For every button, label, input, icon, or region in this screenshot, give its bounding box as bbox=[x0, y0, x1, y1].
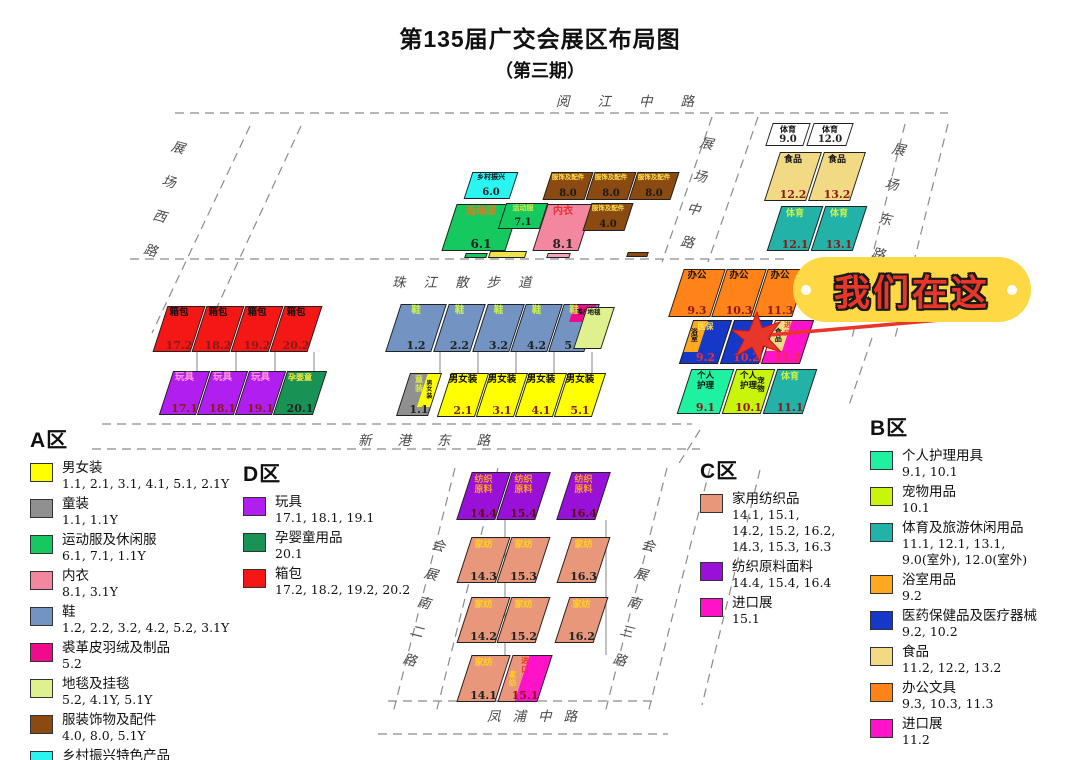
legend-category-name: 体育及旅游休闲用品 bbox=[902, 520, 1027, 536]
legend-swatch bbox=[30, 715, 53, 734]
legend-item-童装: 童装1.1, 1.1Y bbox=[30, 496, 235, 528]
hall-number: 19.2 bbox=[244, 340, 271, 351]
hall-label: 服饰及配件 bbox=[595, 174, 628, 181]
hall-number: 4.1 bbox=[531, 405, 550, 416]
legend-swatch bbox=[243, 497, 266, 516]
hall-block-16.3: 家纺16.3 bbox=[564, 537, 603, 583]
hall-shape bbox=[464, 253, 488, 258]
hall-block-20.2: 箱包20.2 bbox=[277, 306, 315, 352]
legend-item-乡村振兴特色产品: 乡村振兴特色产品6.0 bbox=[30, 748, 235, 760]
legend-item-玩具: 玩具17.1, 18.1, 19.1 bbox=[243, 494, 448, 526]
legend-swatch bbox=[30, 607, 53, 626]
legend-item-个人护理用具: 个人护理用具9.1, 10.1 bbox=[870, 448, 1075, 480]
hall-number: 14.2 bbox=[470, 631, 497, 642]
map-strip bbox=[547, 253, 570, 258]
hall-number: 4.2 bbox=[527, 340, 546, 351]
hall-number: 6.0 bbox=[482, 188, 499, 198]
hall-label: 进 口 bbox=[784, 322, 791, 338]
hall-number: 13.2 bbox=[824, 189, 851, 200]
hall-label: 体育 bbox=[822, 125, 838, 134]
hall-number: 9.1 bbox=[696, 402, 715, 413]
legend-hall-numbers: 5.2 bbox=[62, 656, 170, 672]
legend-item-进口展: 进口展11.2 bbox=[870, 716, 1075, 748]
hall-block-5.1: 男女装5.1 bbox=[561, 373, 599, 417]
hall-label: 家纺 bbox=[514, 599, 532, 609]
hall-sub-label: 男 女 装 bbox=[427, 381, 433, 400]
hall-number: 20.2 bbox=[283, 340, 310, 351]
hall-number: 15.1 bbox=[512, 690, 539, 701]
legend-title: B区 bbox=[870, 412, 1075, 442]
callout-sticker: 我们在这 bbox=[793, 257, 1031, 322]
hall-label: 鞋 bbox=[569, 306, 579, 317]
hall-label: 个人 护理 bbox=[740, 371, 757, 391]
legend-hall-numbers: 14.1, 15.1, 14.2, 15.2, 16.2, 14.3, 15.3… bbox=[732, 507, 835, 555]
hall-label: 办公 bbox=[770, 271, 789, 282]
hall-label: 男女装 bbox=[449, 375, 478, 386]
legend-category-name: 运动服及休闲服 bbox=[62, 532, 157, 548]
hall-number: 6.1 bbox=[471, 238, 492, 250]
legend-category-name: 进口展 bbox=[902, 716, 943, 732]
hall-number: 15.4 bbox=[510, 508, 537, 519]
legend-swatch bbox=[30, 751, 53, 760]
hall-number: 12.2 bbox=[780, 189, 807, 200]
hall-number: 15.3 bbox=[510, 571, 537, 582]
hall-block-20.1: 孕婴童20.1 bbox=[280, 371, 320, 415]
legend-hall-numbers: 17.2, 18.2, 19.2, 20.2 bbox=[275, 582, 410, 598]
legend-hall-numbers: 10.1 bbox=[902, 500, 956, 516]
legend-item-浴室用品: 浴室用品9.2 bbox=[870, 572, 1075, 604]
legend-hall-numbers: 9.2, 10.2 bbox=[902, 624, 1037, 640]
hall-number: 8.1 bbox=[553, 238, 574, 250]
legend-category-name: 个人护理用具 bbox=[902, 448, 983, 464]
hall-label: 服饰及配件 bbox=[552, 174, 585, 181]
hall-number: 13.1 bbox=[826, 239, 853, 250]
hall-label: 进 口 bbox=[521, 657, 529, 674]
hall-block-17.2: 箱包17.2 bbox=[160, 306, 198, 352]
hall-label: 男女装 bbox=[488, 375, 517, 386]
legend-category-name: 乡村振兴特色产品 bbox=[62, 748, 170, 760]
hall-label: 箱包 bbox=[286, 308, 305, 319]
legend-category-name: 进口展 bbox=[732, 595, 773, 611]
legend-swatch bbox=[700, 562, 723, 581]
hall-label: 男女装 bbox=[527, 375, 556, 386]
hall-label: 内衣 bbox=[553, 206, 573, 218]
hall-block-15.4: 纺织 原料15.4 bbox=[504, 472, 543, 520]
hall-shape bbox=[546, 253, 571, 258]
hall-label: 食品 bbox=[828, 154, 846, 164]
hall-block-12.0: 体育12.0 bbox=[810, 123, 850, 146]
legend-item-体育及旅游休闲用品: 体育及旅游休闲用品11.1, 12.1, 13.1, 9.0(室外), 12.0… bbox=[870, 520, 1075, 568]
hall-label: 箱包 bbox=[247, 308, 266, 319]
legend-hall-numbers: 11.2, 12.2, 13.2 bbox=[902, 660, 1001, 676]
legend-item-运动服及休闲服: 运动服及休闲服6.1, 7.1, 1.1Y bbox=[30, 532, 235, 564]
hall-number: 7.1 bbox=[514, 218, 531, 228]
legend-swatch bbox=[870, 611, 893, 630]
legend-hall-numbers: 1.2, 2.2, 3.2, 4.2, 5.2, 3.1Y bbox=[62, 620, 229, 636]
hall-number: 8.0 bbox=[559, 189, 576, 199]
hall-sub-label: 食 品 bbox=[774, 329, 781, 344]
legend-item-男女装: 男女装1.1, 2.1, 3.1, 4.1, 5.1, 2.1Y bbox=[30, 460, 235, 492]
hall-label: 体育 bbox=[786, 208, 804, 218]
hall-block-13.2: 食品13.2 bbox=[816, 152, 858, 201]
hall-number: 16.3 bbox=[570, 571, 597, 582]
hall-number: 11.2 bbox=[774, 352, 801, 363]
legend-hall-numbers: 9.2 bbox=[902, 588, 956, 604]
hall-number: 3.1 bbox=[492, 405, 511, 416]
hall-label: 纺织 原料 bbox=[514, 474, 532, 495]
hall-block-10.2: 10.2 bbox=[727, 320, 766, 364]
legend-category-name: 玩具 bbox=[275, 494, 374, 510]
hall-label: 体育 bbox=[830, 208, 848, 218]
hall-label: 办公 bbox=[729, 271, 748, 282]
hall-block-14.4: 纺织 原料14.4 bbox=[464, 472, 503, 520]
legend-title: A区 bbox=[30, 424, 235, 454]
hall-number: 19.1 bbox=[247, 403, 274, 414]
legend-item-宠物用品: 宠物用品10.1 bbox=[870, 484, 1075, 516]
hall-number: 14.1 bbox=[470, 690, 497, 701]
hall-block-8.1: 内衣8.1 bbox=[540, 204, 586, 251]
legend-swatch bbox=[30, 643, 53, 662]
legend-hall-numbers: 11.2 bbox=[902, 732, 943, 748]
hall-number: 14.4 bbox=[470, 508, 497, 519]
hall-label: 办公 bbox=[687, 271, 706, 282]
legend-hall-numbers: 14.4, 15.4, 16.4 bbox=[732, 575, 831, 591]
legend-swatch bbox=[30, 535, 53, 554]
hall-block-3.1: 男女装3.1 bbox=[483, 373, 521, 417]
hall-number: 5.1 bbox=[570, 405, 589, 416]
hall-block-10.1: 宠 物个人 护理10.1 bbox=[729, 369, 768, 414]
hall-block-19.2: 箱包19.2 bbox=[238, 306, 276, 352]
hall-label: 家纺 bbox=[574, 539, 592, 549]
hall-label: 童 装 bbox=[415, 375, 423, 393]
legend-hall-numbers: 11.1, 12.1, 13.1, 9.0(室外), 12.0(室外) bbox=[902, 536, 1027, 568]
title-line2: （第三期） bbox=[0, 57, 1080, 83]
hall-label: 个人 护理 bbox=[697, 371, 714, 391]
sticker-dot-left bbox=[801, 285, 811, 295]
hall-block-8.0: 服饰及配件8.0 bbox=[590, 172, 632, 200]
hall-block-16.4: 纺织 原料16.4 bbox=[564, 472, 603, 520]
hall-block-2.1: 男女装2.1 bbox=[444, 373, 482, 417]
hall-block-8.0: 服饰及配件8.0 bbox=[547, 172, 589, 200]
hall-label: 鞋 bbox=[532, 306, 542, 317]
legend-category-name: 童装 bbox=[62, 496, 118, 512]
hall-number: 1.1 bbox=[409, 404, 428, 415]
hall-label: 服饰及配件 bbox=[592, 205, 625, 212]
hall-number: 10.2 bbox=[733, 352, 760, 363]
hall-number: 11.1 bbox=[777, 402, 804, 413]
hall-block-8.0: 服饰及配件8.0 bbox=[633, 172, 675, 200]
legend-category-name: 服装饰物及配件 bbox=[62, 712, 157, 728]
hall-label: 乡村振兴 bbox=[477, 174, 505, 182]
legend-item-箱包: 箱包17.2, 18.2, 19.2, 20.2 bbox=[243, 566, 448, 598]
legend-swatch bbox=[243, 569, 266, 588]
hall-block-1.2: 鞋1.2 bbox=[393, 304, 439, 352]
title-line1: 第135届广交会展区布局图 bbox=[0, 20, 1080, 54]
legend-item-服装饰物及配件: 服装饰物及配件4.0, 8.0, 5.1Y bbox=[30, 712, 235, 744]
hall-number: 1.2 bbox=[406, 340, 425, 351]
hall-block-1.1: 男 女 装童 装1.1 bbox=[403, 373, 435, 416]
legend-item-裘革皮羽绒及制品: 裘革皮羽绒及制品5.2 bbox=[30, 640, 235, 672]
hall-number: 11.3 bbox=[767, 305, 794, 316]
hall-label: 家纺 bbox=[474, 599, 492, 609]
hall-block-15.3: 家纺15.3 bbox=[504, 537, 543, 583]
legend-swatch bbox=[870, 523, 893, 542]
legend-hall-numbers: 9.3, 10.3, 11.3 bbox=[902, 696, 993, 712]
hall-number: 12.1 bbox=[782, 239, 809, 250]
hall-number: 8.0 bbox=[602, 189, 619, 199]
legend-category-name: 鞋 bbox=[62, 604, 229, 620]
hall-number: 9.3 bbox=[687, 305, 706, 316]
hall-label: 地毯 bbox=[588, 309, 601, 316]
legend-category-name: 地毯及挂毯 bbox=[62, 676, 152, 692]
legend-swatch bbox=[870, 683, 893, 702]
legend-hall-numbers: 1.1, 1.1Y bbox=[62, 512, 118, 528]
hall-number: 18.1 bbox=[209, 403, 236, 414]
hall-label: 运动服 bbox=[513, 205, 534, 213]
hall-block-9.1: 个人 护理9.1 bbox=[684, 369, 727, 414]
legend-hall-numbers: 6.1, 7.1, 1.1Y bbox=[62, 548, 157, 564]
hall-number: 12.0 bbox=[818, 135, 842, 145]
hall-label: 家纺 bbox=[514, 539, 532, 549]
hall-label: 男女装 bbox=[566, 375, 595, 386]
hall-block-13.1: 体育13.1 bbox=[818, 206, 860, 251]
legend-hall-numbers: 5.2, 4.1Y, 5.1Y bbox=[62, 692, 152, 708]
hall-block-7.1: 运动服7.1 bbox=[502, 203, 544, 229]
hall-shape bbox=[488, 251, 527, 258]
hall-number: 17.1 bbox=[171, 403, 198, 414]
legend-swatch bbox=[870, 719, 893, 738]
hall-number: 3.2 bbox=[489, 340, 508, 351]
legend-swatch bbox=[870, 451, 893, 470]
hall-sub-label: 宠 物 bbox=[758, 377, 766, 393]
hall-number: 4.0 bbox=[599, 220, 616, 230]
legend-item-地毯及挂毯: 地毯及挂毯5.2, 4.1Y, 5.1Y bbox=[30, 676, 235, 708]
hall-label: 家纺 bbox=[474, 539, 492, 549]
legend-category-name: 箱包 bbox=[275, 566, 410, 582]
hall-number: 2.1 bbox=[453, 405, 472, 416]
legend-zone-B区: B区个人护理用具9.1, 10.1宠物用品10.1体育及旅游休闲用品11.1, … bbox=[870, 412, 1075, 752]
legend-item-孕婴童用品: 孕婴童用品20.1 bbox=[243, 530, 448, 562]
hall-number: 15.2 bbox=[510, 631, 537, 642]
legend-swatch bbox=[870, 487, 893, 506]
hall-block-12.1: 体育12.1 bbox=[774, 206, 816, 251]
legend-category-name: 内衣 bbox=[62, 568, 118, 584]
legend-category-name: 家用纺织品 bbox=[732, 491, 835, 507]
hall-block-9.3: 办公9.3 bbox=[676, 269, 718, 317]
hall-block-14.3: 家纺14.3 bbox=[464, 537, 503, 583]
legend-hall-numbers: 9.1, 10.1 bbox=[902, 464, 983, 480]
legend-hall-numbers: 8.1, 3.1Y bbox=[62, 584, 118, 600]
legend-zone-D区: D区玩具17.1, 18.1, 19.1孕婴童用品20.1箱包17.2, 18.… bbox=[243, 458, 448, 602]
sticker-dot-right bbox=[1007, 285, 1017, 295]
hall-block-11.2: 食 品进 口11.2 bbox=[768, 320, 807, 364]
hall-block-9.0: 体育9.0 bbox=[769, 123, 807, 146]
callout-text: 我们在这 bbox=[834, 264, 990, 316]
legend-swatch bbox=[870, 575, 893, 594]
map-strip bbox=[465, 253, 487, 258]
legend-zone-A区: A区男女装1.1, 2.1, 3.1, 4.1, 5.1, 2.1Y童装1.1,… bbox=[30, 424, 235, 760]
hall-block-15.2: 家纺15.2 bbox=[504, 597, 543, 643]
hall-number: 9.2 bbox=[696, 352, 715, 363]
hall-number: 16.2 bbox=[568, 631, 595, 642]
legend-category-name: 纺织原料面料 bbox=[732, 559, 831, 575]
hall-number: 2.2 bbox=[450, 340, 469, 351]
hall-number: 14.3 bbox=[470, 571, 497, 582]
hall-label: 鞋 bbox=[411, 306, 421, 317]
hall-label: 食品 bbox=[784, 154, 802, 164]
legend-hall-numbers: 15.1 bbox=[732, 611, 773, 627]
hall-block-10.3: 办公10.3 bbox=[719, 269, 759, 317]
legend-swatch bbox=[30, 571, 53, 590]
legend-category-name: 办公文具 bbox=[902, 680, 993, 696]
legend-swatch bbox=[30, 463, 53, 482]
hall-label: 箱包 bbox=[169, 308, 188, 319]
map-strip bbox=[489, 251, 526, 258]
hall-label: 孕婴童 bbox=[288, 373, 312, 382]
legend-category-name: 孕婴童用品 bbox=[275, 530, 343, 546]
legend-category-name: 浴室用品 bbox=[902, 572, 956, 588]
legend-category-name: 医药保健品及医疗器械 bbox=[902, 608, 1037, 624]
legend-category-name: 男女装 bbox=[62, 460, 229, 476]
legend-hall-numbers: 4.0, 8.0, 5.1Y bbox=[62, 728, 157, 744]
hall-block-11.1: 体育11.1 bbox=[770, 369, 810, 414]
hall-number: 10.3 bbox=[726, 305, 753, 316]
hall-block-12.2: 食品12.2 bbox=[772, 152, 814, 201]
hall-label: 体育 bbox=[780, 125, 796, 134]
hall-label: 运动服 bbox=[466, 206, 496, 218]
hall-block-4.1: 男女装4.1 bbox=[522, 373, 560, 417]
hall-block-6.0: 乡村振兴6.0 bbox=[468, 172, 514, 199]
hall-block-15.1: 家 纺进 口15.1 bbox=[505, 655, 545, 702]
hall-block-4.0: 服饰及配件4.0 bbox=[587, 203, 629, 231]
legend-item-办公文具: 办公文具9.3, 10.3, 11.3 bbox=[870, 680, 1075, 712]
hall-number: 8.0 bbox=[645, 189, 662, 199]
hall-block-18.2: 箱包18.2 bbox=[199, 306, 237, 352]
legend-swatch bbox=[700, 494, 723, 513]
hall-block-9.2: 浴 室医保9.2 bbox=[686, 320, 725, 364]
hall-shape bbox=[626, 252, 649, 257]
hall-label: 服饰及配件 bbox=[638, 174, 671, 181]
hall-label: 家纺 bbox=[474, 657, 492, 667]
hall-number: 17.2 bbox=[166, 340, 193, 351]
legend-item-内衣: 内衣8.1, 3.1Y bbox=[30, 568, 235, 600]
hall-sub-label: 浴 室 bbox=[691, 329, 698, 344]
hall-block-地毯: 地毯 bbox=[580, 307, 608, 349]
hall-number: 18.2 bbox=[205, 340, 232, 351]
hall-number: 16.4 bbox=[570, 508, 597, 519]
legend-hall-numbers: 1.1, 2.1, 3.1, 4.1, 5.1, 2.1Y bbox=[62, 476, 229, 492]
exhibition-map-image: 阅江中路展场西路展场中路展场东路珠江散步道新港东路会展南二路会展南三路凤浦中路 … bbox=[0, 0, 1080, 760]
legend-title: D区 bbox=[243, 458, 448, 488]
hall-block-14.2: 家纺14.2 bbox=[464, 597, 503, 643]
legend-hall-numbers: 17.1, 18.1, 19.1 bbox=[275, 510, 374, 526]
hall-sub-label: 家 纺 bbox=[509, 671, 517, 687]
hall-number: 10.1 bbox=[735, 402, 762, 413]
legend-item-医药保健品及医疗器械: 医药保健品及医疗器械9.2, 10.2 bbox=[870, 608, 1075, 640]
hall-block-2.2: 鞋2.2 bbox=[441, 304, 478, 352]
hall-block-19.1: 玩具19.1 bbox=[242, 371, 279, 415]
legend-swatch bbox=[700, 598, 723, 617]
hall-block-17.1: 玩具17.1 bbox=[166, 371, 203, 415]
hall-label: 医保 bbox=[698, 322, 714, 331]
legend-swatch bbox=[870, 647, 893, 666]
hall-block-14.1: 家纺14.1 bbox=[464, 655, 503, 702]
legend-category-name: 宠物用品 bbox=[902, 484, 956, 500]
hall-label: 箱包 bbox=[208, 308, 227, 319]
hall-block-16.2: 家纺16.2 bbox=[562, 597, 601, 643]
hall-label: 玩具 bbox=[213, 373, 232, 384]
page-title: 第135届广交会展区布局图 （第三期） bbox=[0, 20, 1080, 83]
hall-label: 纺织 原料 bbox=[574, 474, 592, 495]
legend-item-食品: 食品11.2, 12.2, 13.2 bbox=[870, 644, 1075, 676]
map-strip bbox=[627, 252, 648, 257]
legend-item-鞋: 鞋1.2, 2.2, 3.2, 4.2, 5.2, 3.1Y bbox=[30, 604, 235, 636]
legend-category-name: 食品 bbox=[902, 644, 1001, 660]
legend-swatch bbox=[30, 679, 53, 698]
hall-label: 玩具 bbox=[251, 373, 270, 384]
legend-hall-numbers: 20.1 bbox=[275, 546, 343, 562]
legend-swatch bbox=[243, 533, 266, 552]
hall-label: 鞋 bbox=[455, 306, 465, 317]
hall-label: 玩具 bbox=[175, 373, 194, 384]
hall-label: 体育 bbox=[781, 371, 799, 381]
hall-number: 9.0 bbox=[779, 135, 796, 145]
hall-number: 20.1 bbox=[287, 403, 314, 414]
legend-category-name: 裘革皮羽绒及制品 bbox=[62, 640, 170, 656]
hall-label: 鞋 bbox=[494, 306, 504, 317]
legend-swatch bbox=[30, 499, 53, 518]
hall-label: 家纺 bbox=[572, 599, 590, 609]
hall-label: 纺织 原料 bbox=[474, 474, 492, 495]
hall-block-18.1: 玩具18.1 bbox=[204, 371, 241, 415]
